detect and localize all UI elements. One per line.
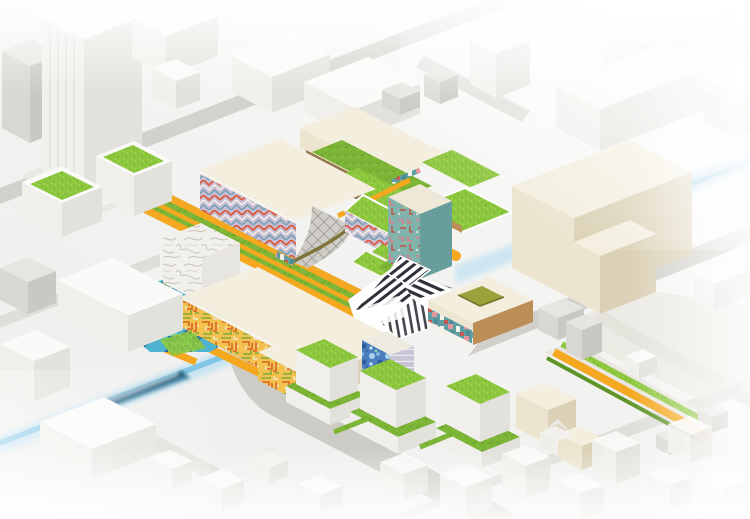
masterplan-illustration [0, 0, 750, 519]
fade-bottom-left [0, 370, 210, 519]
fade-right [628, 0, 750, 519]
masterplan-svg [0, 0, 750, 519]
